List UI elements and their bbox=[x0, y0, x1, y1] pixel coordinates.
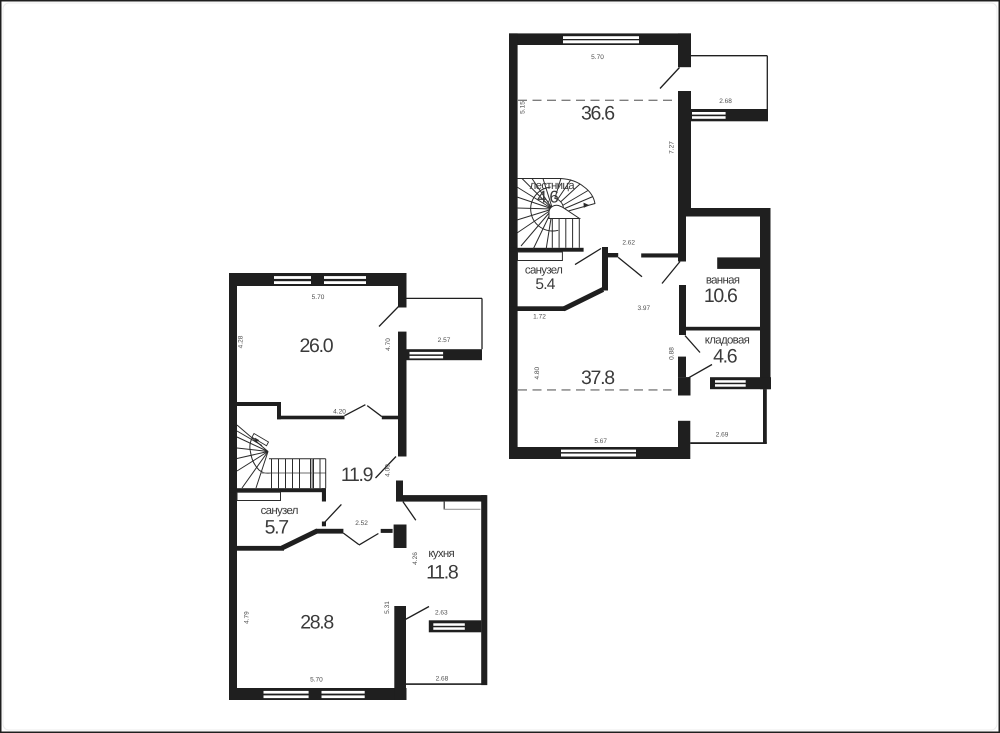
svg-text:37.8: 37.8 bbox=[581, 367, 614, 389]
svg-text:4.79: 4.79 bbox=[243, 611, 250, 624]
svg-text:10.6: 10.6 bbox=[704, 285, 737, 307]
svg-text:5.70: 5.70 bbox=[312, 294, 325, 301]
svg-text:5.67: 5.67 bbox=[594, 438, 607, 445]
svg-text:36.6: 36.6 bbox=[581, 103, 614, 125]
svg-text:2.52: 2.52 bbox=[355, 520, 368, 527]
svg-text:кухня: кухня bbox=[428, 548, 454, 560]
svg-text:санузел: санузел bbox=[261, 505, 298, 517]
svg-text:26.0: 26.0 bbox=[300, 335, 334, 357]
svg-text:2.68: 2.68 bbox=[436, 676, 449, 683]
svg-text:5.31: 5.31 bbox=[384, 601, 391, 614]
svg-text:4.26: 4.26 bbox=[412, 552, 419, 565]
svg-text:5.4: 5.4 bbox=[535, 276, 555, 293]
svg-text:4.6: 4.6 bbox=[713, 346, 737, 368]
svg-text:5.7: 5.7 bbox=[265, 517, 289, 539]
svg-text:11.8: 11.8 bbox=[426, 561, 458, 583]
svg-text:2.69: 2.69 bbox=[716, 432, 729, 439]
svg-text:2.57: 2.57 bbox=[438, 337, 451, 344]
svg-text:3.97: 3.97 bbox=[637, 305, 650, 312]
svg-text:4.6: 4.6 bbox=[537, 187, 558, 206]
svg-text:2.63: 2.63 bbox=[435, 610, 448, 617]
svg-text:5.70: 5.70 bbox=[310, 676, 323, 683]
svg-text:11.9: 11.9 bbox=[341, 464, 373, 486]
svg-text:4.00: 4.00 bbox=[385, 464, 392, 477]
svg-text:санузел: санузел bbox=[525, 265, 562, 277]
svg-text:4.28: 4.28 bbox=[238, 335, 245, 348]
svg-text:2.68: 2.68 bbox=[719, 98, 732, 105]
svg-text:4.20: 4.20 bbox=[333, 408, 346, 415]
svg-text:4.70: 4.70 bbox=[385, 338, 392, 351]
svg-text:0.88: 0.88 bbox=[669, 347, 676, 360]
svg-text:2.62: 2.62 bbox=[622, 239, 635, 246]
svg-text:28.8: 28.8 bbox=[300, 611, 333, 633]
svg-text:5.70: 5.70 bbox=[591, 54, 604, 61]
svg-text:7.27: 7.27 bbox=[669, 141, 676, 154]
svg-text:1.72: 1.72 bbox=[533, 314, 546, 321]
svg-text:5.15: 5.15 bbox=[520, 101, 527, 114]
svg-text:4.80: 4.80 bbox=[534, 366, 541, 379]
